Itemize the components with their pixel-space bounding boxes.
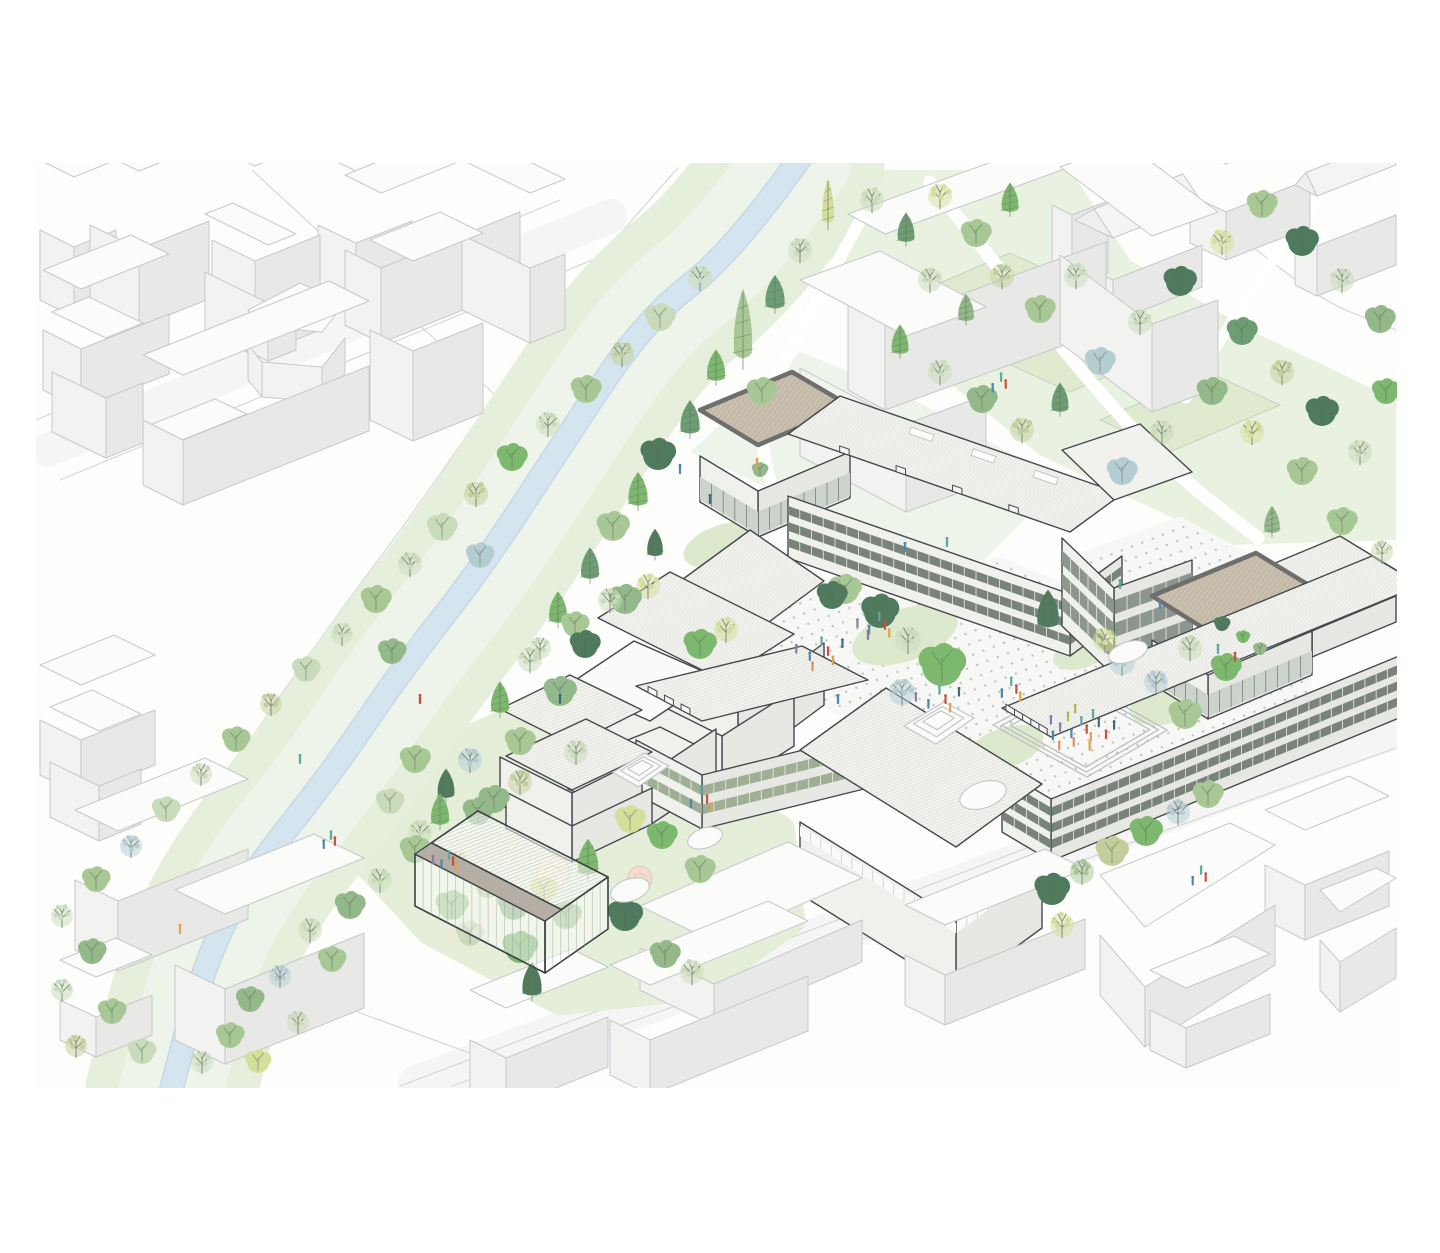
architectural-axonometric-site-plan-page — [0, 0, 1440, 1253]
person — [709, 494, 712, 503]
person — [841, 638, 844, 647]
site-plan-illustration — [0, 0, 1440, 1253]
person — [1092, 709, 1095, 718]
person — [333, 836, 336, 845]
person — [1080, 716, 1083, 725]
person — [808, 651, 811, 660]
person — [1074, 704, 1077, 713]
person — [820, 636, 823, 645]
illustration-content — [36, 103, 1421, 1109]
person — [1050, 715, 1053, 724]
person — [322, 839, 325, 848]
person — [710, 802, 713, 811]
person — [559, 694, 562, 703]
person — [452, 856, 455, 865]
person — [1085, 724, 1088, 733]
person — [927, 699, 930, 708]
person — [958, 687, 961, 696]
person — [1004, 379, 1007, 388]
person — [756, 458, 759, 467]
person — [455, 862, 458, 871]
person — [1204, 872, 1207, 881]
person — [949, 703, 952, 712]
person — [856, 618, 859, 627]
person — [827, 646, 830, 655]
person — [1070, 729, 1073, 738]
person — [831, 655, 834, 664]
person — [1072, 737, 1075, 746]
person — [867, 630, 870, 639]
person — [419, 694, 422, 703]
person — [330, 830, 333, 839]
person — [1000, 372, 1003, 381]
person — [991, 383, 994, 392]
person — [690, 799, 693, 808]
person — [706, 794, 709, 803]
person — [837, 694, 840, 703]
person — [811, 662, 814, 671]
person — [946, 537, 949, 546]
person — [179, 924, 182, 933]
person — [1089, 732, 1092, 741]
person — [1067, 712, 1070, 721]
person — [1113, 720, 1116, 729]
person — [1119, 579, 1122, 588]
person — [1159, 599, 1162, 608]
person — [1088, 741, 1091, 750]
person — [1010, 676, 1013, 685]
person — [1234, 652, 1237, 661]
person — [299, 754, 302, 763]
person — [1000, 688, 1003, 697]
person — [1191, 876, 1194, 885]
person — [888, 628, 891, 637]
person — [884, 620, 887, 629]
person — [1217, 644, 1220, 653]
person — [1105, 729, 1108, 738]
person — [679, 464, 682, 473]
person — [938, 685, 941, 694]
person — [1200, 865, 1203, 874]
person — [1019, 692, 1022, 701]
person — [1059, 722, 1062, 731]
person — [904, 542, 907, 551]
person — [1052, 730, 1055, 739]
person — [440, 859, 443, 868]
person — [1097, 718, 1100, 727]
person — [878, 612, 881, 621]
person — [432, 855, 435, 864]
person — [1015, 684, 1018, 693]
person — [914, 692, 917, 701]
person — [944, 694, 947, 703]
person — [795, 644, 798, 653]
person — [1058, 740, 1061, 749]
person — [448, 850, 451, 859]
person — [700, 786, 703, 795]
